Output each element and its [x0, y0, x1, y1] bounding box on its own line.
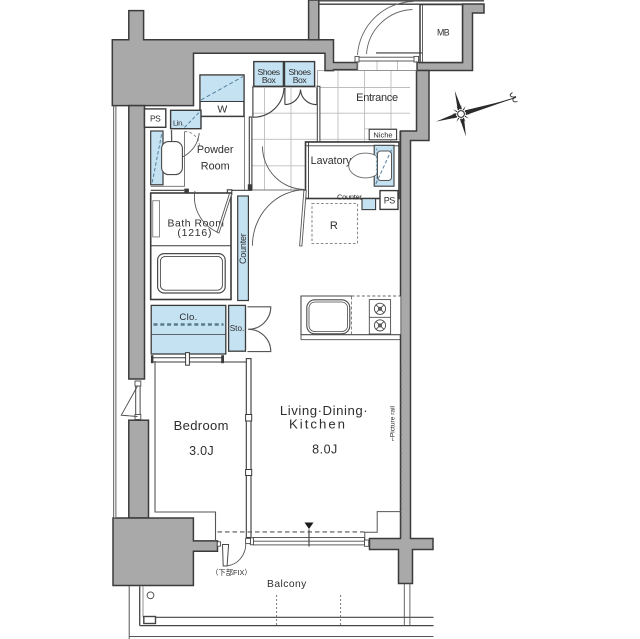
svg-text:PS: PS	[384, 196, 396, 206]
svg-text:Box: Box	[293, 75, 308, 85]
svg-text:3.0J: 3.0J	[189, 444, 214, 458]
svg-text:Box: Box	[262, 75, 277, 85]
svg-text:Room: Room	[201, 161, 230, 173]
svg-text:Balcony: Balcony	[267, 579, 307, 590]
svg-text:Lavatory: Lavatory	[311, 155, 352, 167]
svg-text:Lin.: Lin.	[173, 118, 184, 127]
svg-text:PS: PS	[150, 113, 161, 123]
svg-text:Niche: Niche	[373, 130, 392, 139]
svg-text:W: W	[217, 103, 227, 115]
svg-text:（下部FIX）: （下部FIX）	[211, 568, 252, 577]
svg-text:R: R	[330, 220, 338, 232]
svg-text:Bedroom: Bedroom	[174, 418, 229, 433]
svg-text:Counter: Counter	[337, 192, 362, 201]
svg-text:Sto.: Sto.	[230, 324, 245, 333]
svg-text:Powder: Powder	[197, 144, 234, 156]
svg-text:(1216): (1216)	[177, 228, 212, 239]
svg-text:Entrance: Entrance	[356, 92, 398, 104]
svg-text:8.0J: 8.0J	[312, 443, 338, 457]
svg-text:Clo.: Clo.	[179, 312, 197, 323]
svg-text:MB: MB	[437, 28, 450, 38]
svg-text:Counter: Counter	[238, 233, 248, 264]
svg-text:Living·Dining·: Living·Dining·	[280, 403, 368, 418]
svg-text:⌐Picture rail: ⌐Picture rail	[389, 405, 396, 441]
svg-text:Kitchen: Kitchen	[289, 417, 347, 432]
